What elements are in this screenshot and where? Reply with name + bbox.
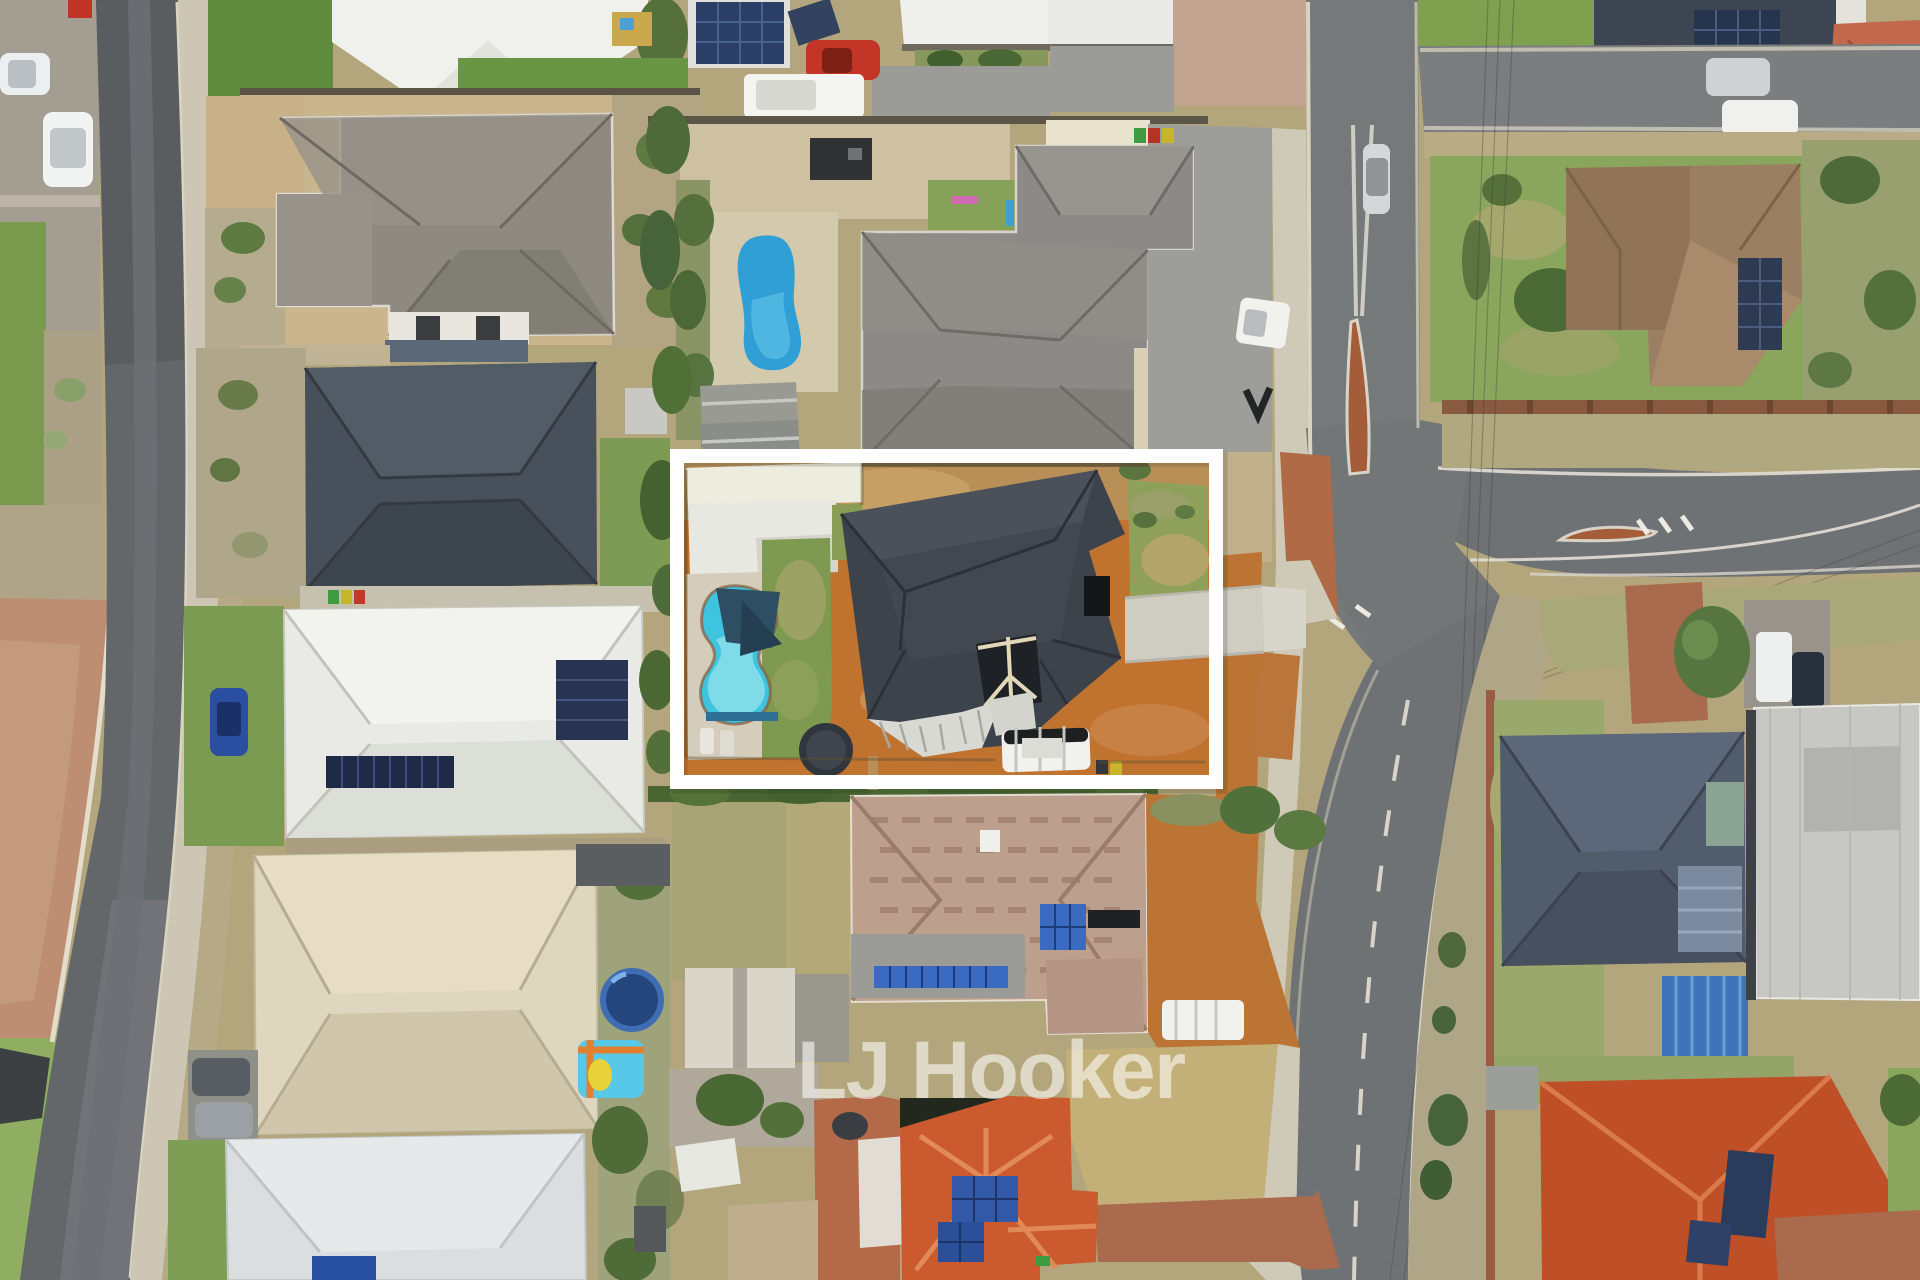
svg-text:LJ Hooker: LJ Hooker: [797, 1025, 1185, 1116]
